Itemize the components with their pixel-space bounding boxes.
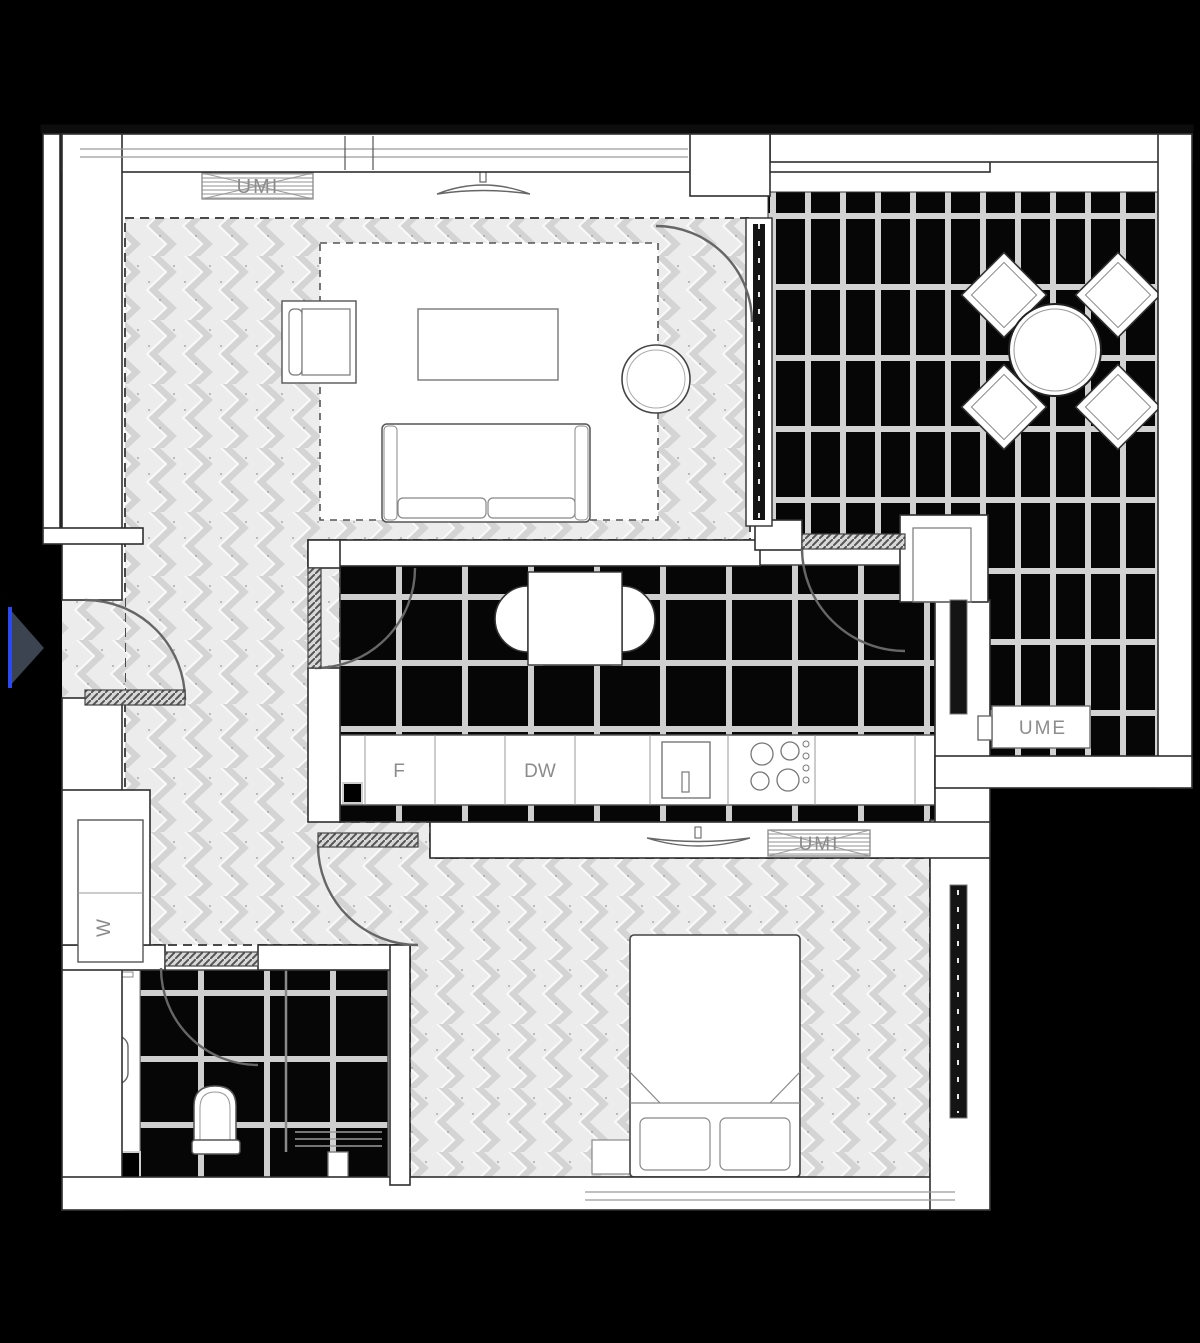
window-bedroom-right — [950, 885, 967, 1118]
armchair — [282, 301, 356, 383]
dishwasher-label: DW — [524, 761, 556, 782]
entry-arrow-icon — [8, 607, 44, 688]
kitchen-sink — [662, 742, 710, 798]
floor-plan-canvas: UMI F DW — [0, 0, 1200, 1343]
party-wall-return — [43, 528, 143, 544]
wall-balcony-right — [1158, 134, 1192, 788]
pillow — [720, 1118, 790, 1170]
ac-bedroom-label: UMI — [799, 834, 840, 855]
fridge-label: F — [393, 761, 405, 782]
wall-kitchen-left-b — [308, 668, 340, 822]
wall-bottom — [62, 1177, 990, 1210]
side-table — [622, 345, 690, 413]
entry-threshold — [62, 598, 125, 700]
floor-plan: UMI F DW — [0, 0, 1200, 1343]
wall-corner-block — [690, 134, 770, 196]
ac-living-label: UMI — [237, 176, 280, 198]
coffee-table — [418, 309, 558, 380]
wall-kitchen-left-a — [308, 540, 340, 568]
wall-bedroom-top — [430, 822, 990, 858]
wall-top-balcony — [770, 134, 1192, 162]
window-kitchen-balcony — [950, 600, 967, 714]
sofa — [382, 424, 590, 522]
ac-outdoor-unit: UME — [978, 706, 1090, 748]
ac-indoor-unit-bedroom: UMI — [768, 830, 870, 856]
wall-balcony-bottom — [935, 756, 1192, 788]
window-living-balcony — [746, 218, 772, 526]
pillow — [640, 1118, 710, 1170]
dining-table — [528, 572, 622, 665]
bed — [630, 935, 800, 1177]
ac-outdoor-label: UME — [1019, 718, 1067, 739]
washing-machine-label: W — [94, 919, 115, 937]
balcony-table — [1009, 304, 1101, 396]
toilet — [192, 1086, 240, 1154]
counter-end-box — [343, 783, 362, 803]
washing-machine-niche: W — [78, 820, 143, 962]
wall-bath-top-b — [258, 945, 410, 970]
wall-bedroom-left — [390, 945, 410, 1185]
kitchen-counter: F DW — [340, 735, 935, 805]
wall-living-kitchen — [308, 540, 760, 566]
ac-indoor-unit-living: UMI — [202, 173, 313, 199]
party-wall-strip — [43, 134, 60, 540]
